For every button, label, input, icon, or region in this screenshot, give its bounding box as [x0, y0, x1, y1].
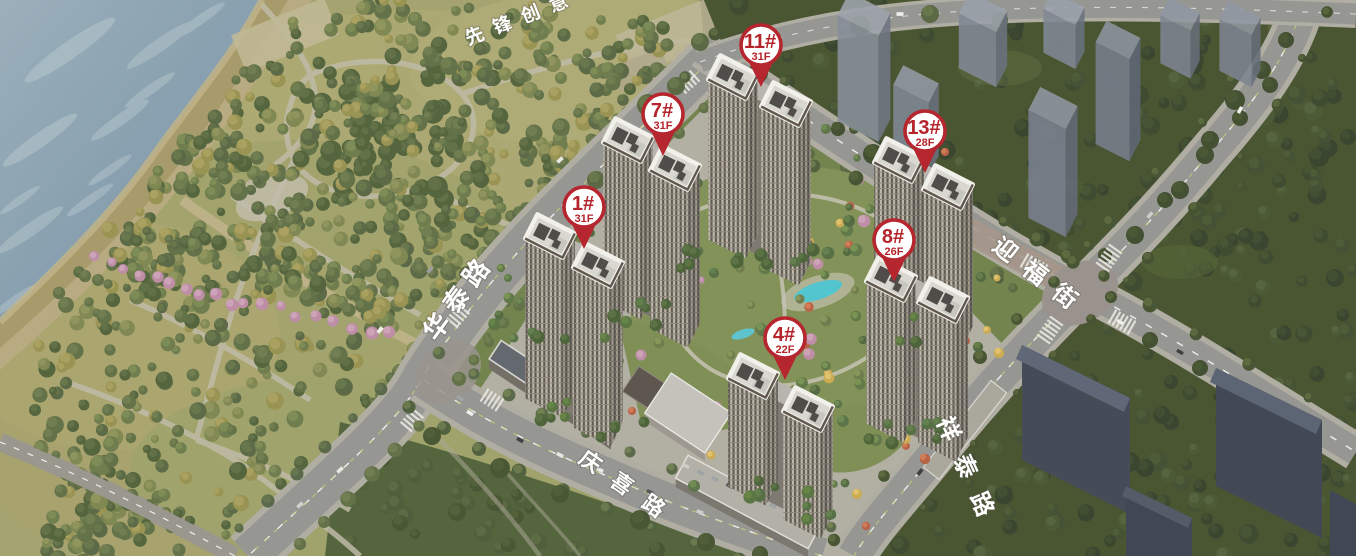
svg-text:22F: 22F	[776, 344, 795, 356]
svg-text:28F: 28F	[916, 137, 935, 149]
svg-text:7#: 7#	[651, 100, 673, 122]
svg-text:1#: 1#	[572, 193, 594, 215]
svg-text:26F: 26F	[885, 246, 904, 258]
svg-text:31F: 31F	[654, 120, 673, 132]
svg-text:4#: 4#	[773, 324, 795, 346]
svg-text:31F: 31F	[752, 51, 771, 63]
svg-text:31F: 31F	[575, 213, 594, 225]
svg-text:13#: 13#	[907, 117, 940, 139]
svg-text:8#: 8#	[882, 226, 904, 248]
svg-text:11#: 11#	[744, 31, 776, 53]
